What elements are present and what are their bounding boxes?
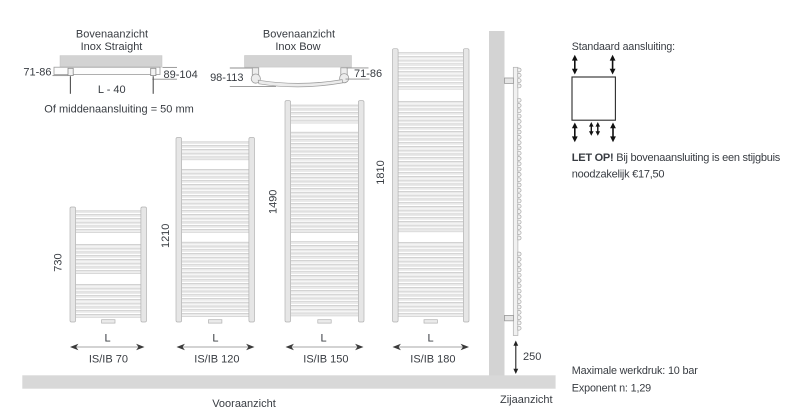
svg-text:Zijaanzicht: Zijaanzicht xyxy=(500,394,553,406)
svg-text:L: L xyxy=(427,333,433,345)
svg-text:Exponent n: 1,29: Exponent n: 1,29 xyxy=(572,382,651,394)
svg-text:IS/IB 120: IS/IB 120 xyxy=(194,353,239,365)
svg-text:1490: 1490 xyxy=(268,190,280,214)
svg-text:1210: 1210 xyxy=(160,224,172,248)
svg-text:IS/IB 180: IS/IB 180 xyxy=(410,353,455,365)
svg-text:730: 730 xyxy=(53,253,65,271)
svg-text:250: 250 xyxy=(523,351,541,363)
svg-text:IS/IB 150: IS/IB 150 xyxy=(303,353,348,365)
svg-text:1810: 1810 xyxy=(375,160,387,184)
svg-text:Vooraanzicht: Vooraanzicht xyxy=(212,398,276,410)
svg-text:L: L xyxy=(104,333,110,345)
svg-text:Bovenaanzicht: Bovenaanzicht xyxy=(263,29,335,41)
svg-text:L - 40: L - 40 xyxy=(98,84,126,96)
svg-text:LET OP! Bij bovenaansluiting i: LET OP! Bij bovenaansluiting is een stij… xyxy=(572,152,781,164)
svg-text:98-113: 98-113 xyxy=(210,72,243,84)
svg-text:L: L xyxy=(320,333,326,345)
svg-text:Inox Bow: Inox Bow xyxy=(275,41,320,53)
svg-text:Maximale werkdruk: 10 bar: Maximale werkdruk: 10 bar xyxy=(572,365,698,377)
svg-text:noodzakelijk €17,50: noodzakelijk €17,50 xyxy=(572,169,665,181)
svg-text:Bovenaanzicht: Bovenaanzicht xyxy=(76,29,148,41)
svg-text:71-86: 71-86 xyxy=(23,67,51,79)
svg-text:Of middenaansluiting = 50 mm: Of middenaansluiting = 50 mm xyxy=(44,104,194,116)
svg-text:Standaard aansluiting:: Standaard aansluiting: xyxy=(572,41,675,53)
svg-text:Inox Straight: Inox Straight xyxy=(81,41,143,53)
svg-text:L: L xyxy=(212,333,218,345)
svg-text:71-86: 71-86 xyxy=(354,68,382,80)
svg-text:IS/IB 70: IS/IB 70 xyxy=(89,353,128,365)
